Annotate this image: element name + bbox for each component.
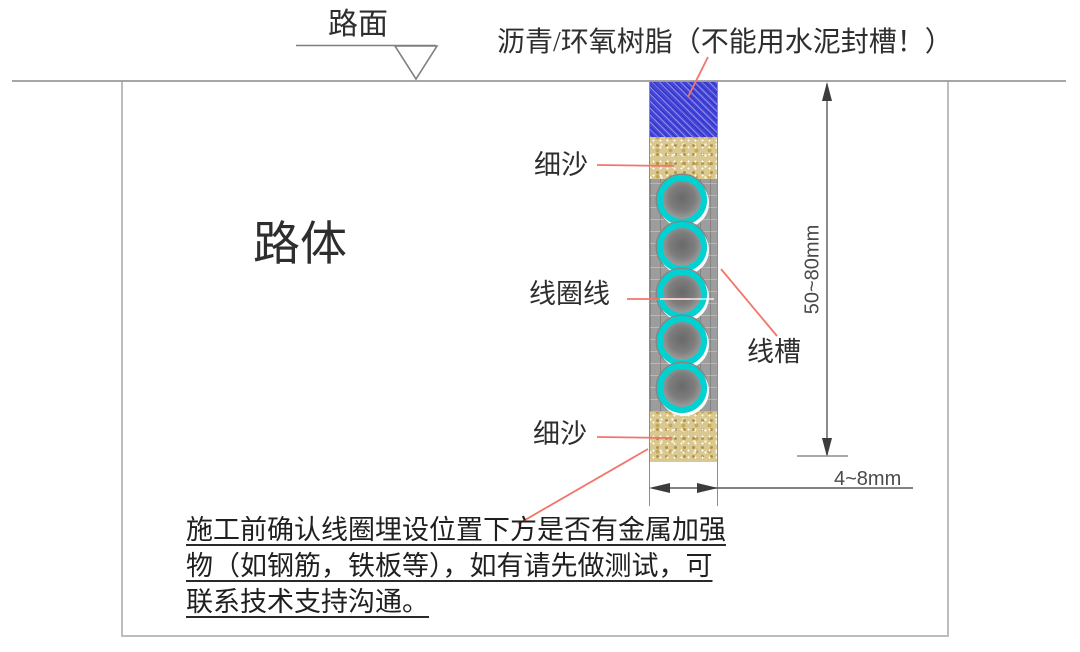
fine-sand-top-label: 细沙 [534, 150, 588, 181]
installation-diagram: 路面 沥青/环氧树脂（不能用水泥封槽！） 路体 细沙 线圈线 线槽 细沙 50~… [0, 0, 1080, 652]
warning-line: 施工前确认线圈埋设位置下方是否有金属加强 [186, 512, 726, 548]
depth-dimension-label: 50~80mm [802, 220, 825, 320]
coil-wire-label: 线圈线 [529, 279, 610, 310]
road-body-label: 路体 [253, 218, 347, 272]
construction-warning-note: 施工前确认线圈埋设位置下方是否有金属加强 物（如钢筋，铁板等），如有请先做测试，… [186, 512, 726, 620]
leader-slot [721, 269, 777, 336]
leader-sand-top [597, 165, 674, 166]
road-surface-label: 路面 [328, 8, 388, 43]
fine-sand-bottom-label: 细沙 [533, 419, 587, 450]
leader-seal [688, 57, 708, 97]
surface-marker-triangle-icon [395, 46, 437, 79]
warning-line: 联系技术支持沟通。 [186, 584, 726, 620]
leader-sand-bottom [597, 437, 672, 438]
width-dimension-label: 4~8mm [834, 468, 901, 491]
warning-line: 物（如钢筋，铁板等），如有请先做测试，可 [186, 548, 726, 584]
seal-warning-label: 沥青/环氧树脂（不能用水泥封槽！） [497, 27, 953, 59]
slot-label: 线槽 [747, 337, 801, 368]
